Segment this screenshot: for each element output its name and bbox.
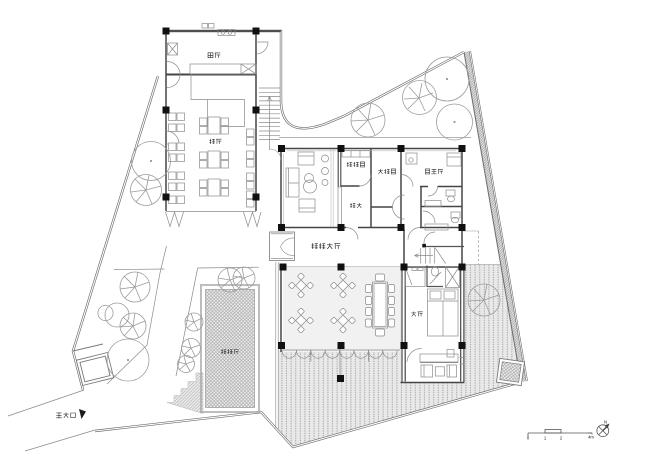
svg-text:4m: 4m — [588, 435, 594, 440]
svg-text:N: N — [604, 420, 607, 425]
